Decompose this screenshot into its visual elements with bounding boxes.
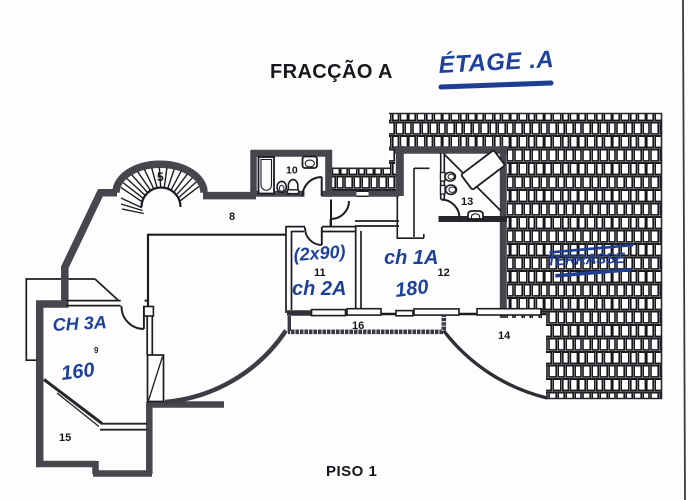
svg-text:180: 180 — [394, 276, 430, 302]
svg-text:9: 9 — [94, 346, 99, 355]
svg-text:FRACÇÃO A: FRACÇÃO A — [270, 60, 393, 83]
svg-text:15: 15 — [59, 432, 71, 444]
svg-text:5: 5 — [157, 170, 164, 184]
svg-text:10: 10 — [286, 165, 298, 177]
svg-text:PISO 1: PISO 1 — [326, 463, 377, 480]
svg-text:13: 13 — [461, 196, 473, 208]
svg-text:ch 2A: ch 2A — [292, 278, 346, 300]
svg-text:12: 12 — [438, 267, 450, 279]
svg-text:160: 160 — [60, 359, 96, 385]
svg-text:16: 16 — [352, 320, 364, 332]
svg-text:8: 8 — [229, 211, 235, 223]
svg-text:TERRASSE: TERRASSE — [547, 250, 627, 270]
svg-text:14: 14 — [498, 330, 511, 342]
svg-text:CH 3A: CH 3A — [52, 312, 107, 335]
svg-text:(2x90): (2x90) — [293, 241, 346, 265]
svg-text:ch 1A: ch 1A — [384, 247, 438, 269]
